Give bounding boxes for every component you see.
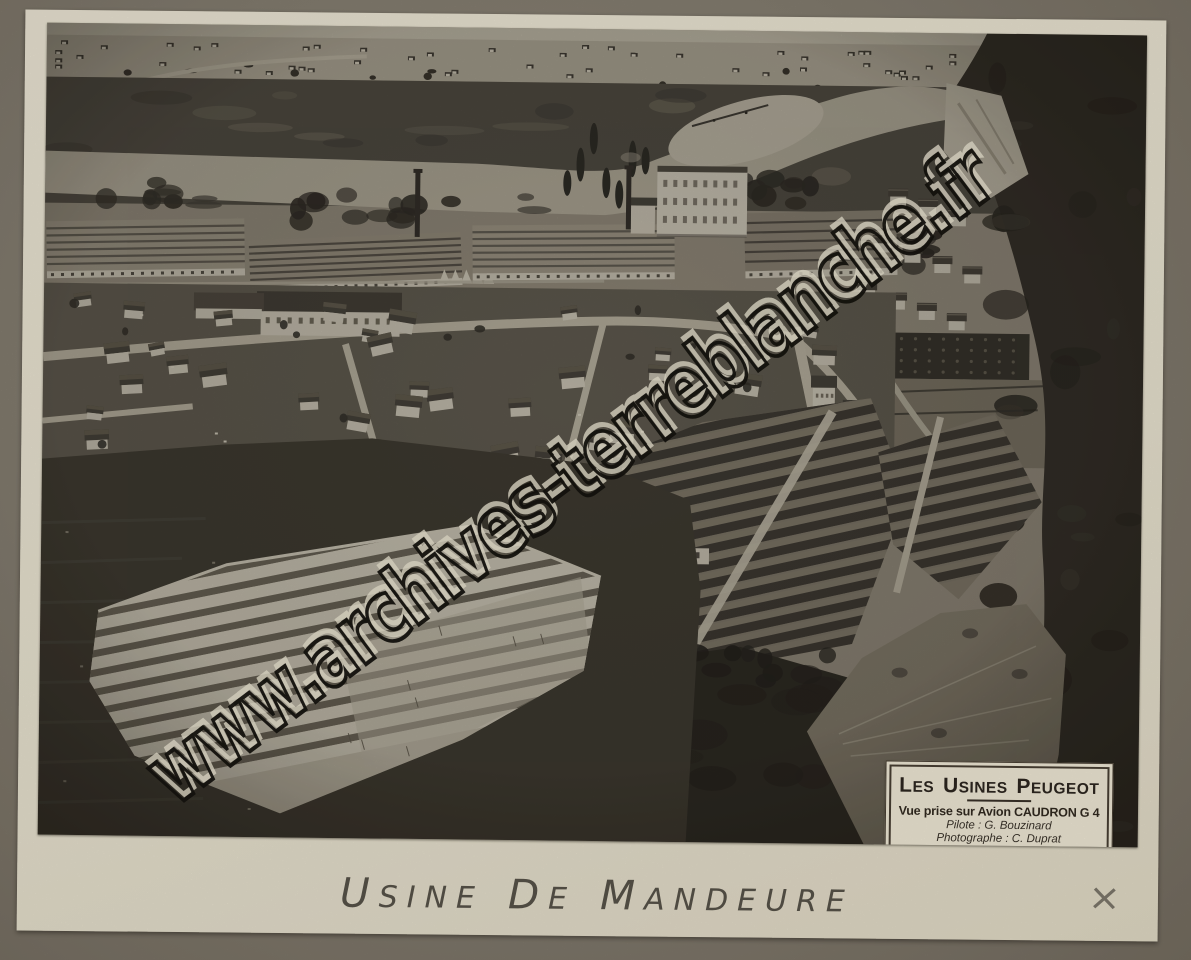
- photographer-plate-inner: Les Usines Peugeot Vue prise sur Avion C…: [889, 765, 1110, 848]
- plate-title-word: Les: [899, 774, 934, 798]
- photo-caption: UsinedeMandeure: [247, 868, 947, 923]
- aerial-photograph: www.archives-terreblanche.fr www.archive…: [38, 23, 1147, 848]
- caption-word: Usine: [340, 869, 484, 918]
- plate-photographer-credit: Photographe : C. Duprat: [891, 832, 1107, 847]
- plate-title-underline: [967, 799, 1031, 802]
- photographer-plate: Les Usines Peugeot Vue prise sur Avion C…: [885, 760, 1114, 847]
- pencil-cross-mark: ×: [1087, 875, 1122, 919]
- album-page-mat: www.archives-terreblanche.fr www.archive…: [17, 10, 1167, 942]
- plate-title-word: Peugeot: [1016, 775, 1099, 800]
- caption-word: de: [508, 870, 577, 919]
- scanned-album-page: { "photo": { "watermark": "www.archives-…: [0, 0, 1191, 960]
- plate-title-word: Usines: [943, 774, 1008, 799]
- caption-word: Mandeure: [600, 871, 854, 921]
- plate-subtitle: Vue prise sur Avion CAUDRON G 4: [891, 804, 1107, 821]
- photo-scene: [38, 23, 1147, 848]
- plate-title: Les Usines Peugeot: [891, 774, 1107, 801]
- plate-pilot-credit: Pilote : G. Bouzinard: [891, 819, 1107, 834]
